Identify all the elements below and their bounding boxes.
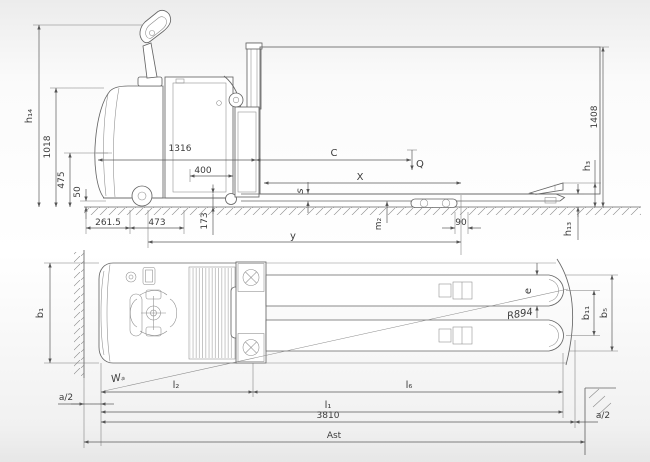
dim-90-label: 90 [455,218,467,228]
dim-a2-left-label: a/2 [59,393,73,403]
dim-h14-label: h₁₄ [24,109,35,123]
plan-view-truck-body [99,262,266,363]
dim-400-label: 400 [194,166,211,176]
aisle-corner-right [585,388,616,455]
drive-wheel [132,186,152,206]
dim-473-label: 473 [148,218,165,228]
side-view-truck-body [95,77,237,206]
dim-l6-label: l₆ [406,380,413,391]
load-outline-side [260,47,600,194]
dim-l2-label: l₂ [173,380,180,391]
dim-Wa-label: Wₐ [110,372,126,386]
dim-e-label: e [523,288,534,294]
dim-h3-label: h₃ [582,161,593,171]
dim-X-label: X [357,172,364,183]
dim-l1-label: l₁ [325,400,332,411]
fork-carriage [236,262,266,363]
wall-hatch [74,252,84,376]
dim-b11-label: b₁₁ [581,306,592,320]
drawing-canvas: h₁₄ 1018 475 50 1316 400 C Q X s [0,0,650,462]
dim-b5-label: b₅ [599,308,610,318]
ground-hatch [84,208,641,216]
tiller-head [140,10,171,42]
fork-tip-raised [530,183,563,194]
dim-1316-label: 1316 [169,144,192,154]
dim-m2-label: m₂ [374,217,384,230]
side-view [84,10,641,215]
dim-173-label: 173 [200,212,210,229]
dim-h13-label: h₁₃ [563,222,574,236]
dim-261-5-label: 261.5 [95,218,121,228]
dim-Q-label: Q [416,159,424,170]
dim-s-label: s [295,188,306,193]
dim-b1-label: b₁ [35,308,46,318]
side-view-forks [241,183,565,208]
ground-line [84,207,641,215]
dim-3810-label: 3810 [317,411,340,421]
dim-1018-label: 1018 [43,135,53,158]
platform-ribs [190,268,234,358]
battery-compartment [165,77,233,198]
dim-475-label: 475 [57,171,67,188]
dim-y-label: y [290,231,296,242]
dim-C-label: C [331,148,338,159]
plan-view [74,250,616,455]
tiller-arm [138,10,171,86]
dim-a2-right-label: a/2 [596,411,610,421]
pallet-truck-dimension-drawing: h₁₄ 1018 475 50 1316 400 C Q X s [0,0,650,462]
load-wheel-bogie [411,199,457,208]
dim-1408-label: 1408 [590,105,600,128]
dim-50-label: 50 [73,186,83,198]
aisle-wall-left [74,250,84,378]
dim-Ast-label: Ast [327,431,342,441]
